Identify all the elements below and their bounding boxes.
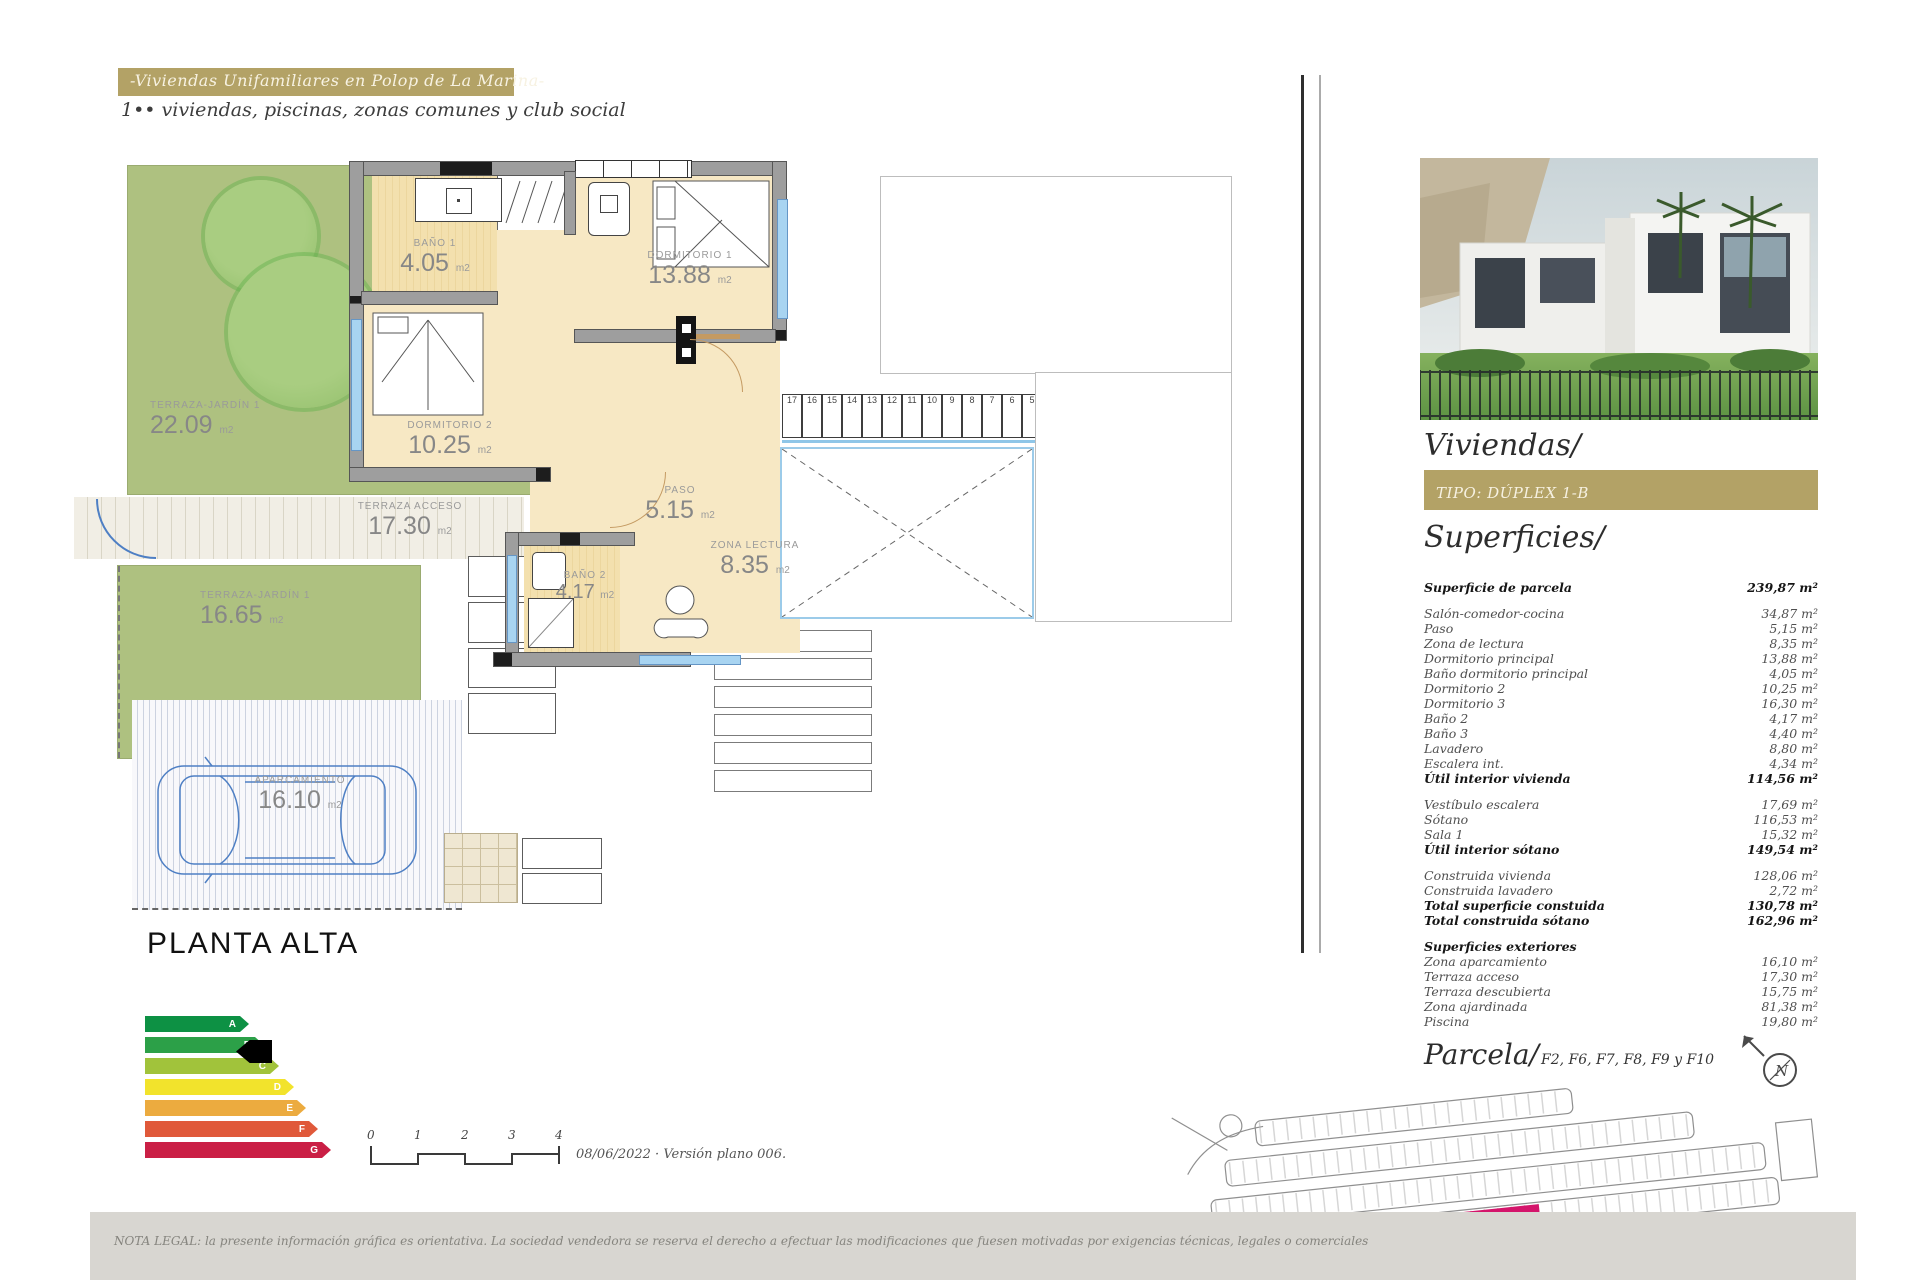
stair-tread: 13 <box>862 394 882 438</box>
room-label: TERRAZA-JARDÍN 1 22.09 m2 <box>150 400 260 440</box>
row-label: Baño dormitorio principal <box>1424 666 1588 681</box>
table-spacer <box>1424 786 1818 797</box>
scale-bar-icon <box>370 1144 570 1170</box>
wall <box>536 468 550 481</box>
row-label: Escalera int. <box>1424 756 1504 771</box>
wall <box>440 162 492 175</box>
row-value: 4,40 m² <box>1769 726 1818 741</box>
toilet-icon <box>588 182 630 236</box>
row-label: Zona de lectura <box>1424 636 1524 651</box>
void-x-icon <box>782 449 1032 617</box>
storage-shelf-small <box>522 838 602 904</box>
stair-tread: 9 <box>942 394 962 438</box>
stair-edge <box>782 440 1062 443</box>
table-spacer <box>1424 928 1818 939</box>
room-label: TERRAZA ACCESO 17.30 m2 <box>310 501 510 541</box>
parcela-subtitle: F2, F6, F7, F8, F9 y F10 <box>1541 1052 1714 1068</box>
row-value: 4,34 m² <box>1769 756 1818 771</box>
row-value: 239,87 m² <box>1747 580 1818 595</box>
viviendas-title: Viviendas/ <box>1424 428 1581 463</box>
wall <box>362 292 497 304</box>
wall <box>560 533 580 545</box>
superficies-table: Superficie de parcela239,87 m²Salón-come… <box>1424 580 1818 1029</box>
superficies-row: Construida lavadero2,72 m² <box>1424 883 1818 898</box>
stair-tread: 17 <box>782 394 802 438</box>
superficies-row: Dormitorio 210,25 m² <box>1424 681 1818 696</box>
wall <box>575 330 775 342</box>
wall <box>494 653 512 666</box>
superficies-row: Dormitorio principal13,88 m² <box>1424 651 1818 666</box>
room-label: ZONA LECTURA 8.35 m2 <box>690 540 820 580</box>
superficies-row: Terraza descubierta15,75 m² <box>1424 984 1818 999</box>
row-label: Sótano <box>1424 812 1468 827</box>
row-value: 19,80 m² <box>1761 1014 1818 1029</box>
superficies-row: Escalera int.4,34 m² <box>1424 756 1818 771</box>
row-value: 15,32 m² <box>1761 827 1818 842</box>
row-value: 8,80 m² <box>1769 741 1818 756</box>
room-label: DORMITORIO 2 10.25 m2 <box>380 420 520 460</box>
row-label: Dormitorio principal <box>1424 651 1554 666</box>
section-line <box>1301 75 1304 953</box>
superficies-row: Total superficie constuida130,78 m² <box>1424 898 1818 913</box>
window <box>508 556 516 642</box>
room-label: DORMITORIO 1 13.88 m2 <box>610 250 770 290</box>
room-label: BAÑO 2 4.17 m2 <box>540 570 630 604</box>
row-value: 4,17 m² <box>1769 711 1818 726</box>
row-value: 8,35 m² <box>1769 636 1818 651</box>
neighbour-outline <box>1035 372 1232 622</box>
parcela-title: Parcela/ <box>1424 1038 1539 1071</box>
energy-arrow-g: G <box>145 1142 331 1158</box>
superficies-row: Lavadero8,80 m² <box>1424 741 1818 756</box>
row-value: 2,72 m² <box>1769 883 1818 898</box>
sink-icon <box>415 178 502 222</box>
header-title: -Viviendas Unifamiliares en Polop de La … <box>130 71 545 90</box>
hall-floor <box>530 337 780 560</box>
row-label: Total superficie constuida <box>1424 898 1605 913</box>
superficies-row: Zona de lectura8,35 m² <box>1424 636 1818 651</box>
bed-icon <box>372 312 484 416</box>
superficies-row: Total construida sótano162,96 m² <box>1424 913 1818 928</box>
superficies-row: Paso5,15 m² <box>1424 621 1818 636</box>
superficies-row: Baño 34,40 m² <box>1424 726 1818 741</box>
stair-run: 1716151413121110987654 <box>782 394 1062 438</box>
door-lintel <box>690 334 740 339</box>
room-label: TERRAZA-JARDÍN 1 16.65 m2 <box>200 590 310 630</box>
row-value: 16,30 m² <box>1761 696 1818 711</box>
version-note: 08/06/2022 · Versión plano 006. <box>576 1147 786 1162</box>
shower-icon <box>528 598 574 648</box>
stair-tread: 7 <box>982 394 1002 438</box>
villa-render-photo <box>1420 158 1818 420</box>
energy-arrow-f: F <box>145 1121 318 1137</box>
row-label: Lavadero <box>1424 741 1483 756</box>
row-label: Zona aparcamiento <box>1424 954 1547 969</box>
plan-sheet: -Viviendas Unifamiliares en Polop de La … <box>0 0 1920 1280</box>
stair-tread: 11 <box>902 394 922 438</box>
row-value: 34,87 m² <box>1761 606 1818 621</box>
wall <box>565 172 575 234</box>
wall <box>350 468 550 481</box>
window <box>778 200 787 318</box>
floor-title: PLANTA ALTA <box>147 927 359 961</box>
parcela-heading: Parcela/F2, F6, F7, F8, F9 y F10 <box>1424 1038 1714 1071</box>
superficies-row: Terraza acceso17,30 m² <box>1424 969 1818 984</box>
row-value: 130,78 m² <box>1747 898 1818 913</box>
row-label: Superficie de parcela <box>1424 580 1572 595</box>
energy-arrow-e: E <box>145 1100 306 1116</box>
row-label: Construida lavadero <box>1424 883 1553 898</box>
superficies-row: Vestíbulo escalera17,69 m² <box>1424 797 1818 812</box>
window <box>640 656 740 664</box>
row-value: 17,30 m² <box>1761 969 1818 984</box>
stair-tread: 6 <box>1002 394 1022 438</box>
patio-grid <box>444 833 518 903</box>
row-label: Terraza acceso <box>1424 969 1519 984</box>
row-label: Sala 1 <box>1424 827 1463 842</box>
energy-arrow-d: D <box>145 1079 294 1095</box>
superficies-row: Zona ajardinada81,38 m² <box>1424 999 1818 1014</box>
energy-arrow-a: A <box>145 1016 249 1032</box>
superficies-row: Sala 115,32 m² <box>1424 827 1818 842</box>
row-value: 114,56 m² <box>1747 771 1818 786</box>
table-spacer <box>1424 595 1818 606</box>
row-label: Dormitorio 3 <box>1424 696 1505 711</box>
superficies-row: Piscina19,80 m² <box>1424 1014 1818 1029</box>
superficies-row: Baño dormitorio principal4,05 m² <box>1424 666 1818 681</box>
row-label: Salón-comedor-cocina <box>1424 606 1564 621</box>
superficies-row: Construida vivienda128,06 m² <box>1424 868 1818 883</box>
row-label: Baño 3 <box>1424 726 1468 741</box>
car-icon <box>150 752 430 892</box>
window-grille <box>575 160 692 178</box>
section-line <box>1319 75 1321 953</box>
void-x-area <box>780 447 1034 619</box>
row-value: 13,88 m² <box>1761 651 1818 666</box>
svg-text:N: N <box>1774 1062 1789 1080</box>
room-label: APARCAMIENTO 16.10 m2 <box>225 775 375 815</box>
superficies-row: Baño 24,17 m² <box>1424 711 1818 726</box>
row-label: Útil interior sótano <box>1424 842 1559 857</box>
superficies-row: Superficies exteriores <box>1424 939 1818 954</box>
stair-tread: 15 <box>822 394 842 438</box>
row-label: Terraza descubierta <box>1424 984 1551 999</box>
row-value: 116,53 m² <box>1753 812 1818 827</box>
energy-label: ABCDEFG <box>145 1016 345 1163</box>
row-label: Zona ajardinada <box>1424 999 1527 1014</box>
row-value: 149,54 m² <box>1747 842 1818 857</box>
row-value: 5,15 m² <box>1769 621 1818 636</box>
row-label: Útil interior vivienda <box>1424 771 1571 786</box>
window <box>352 320 361 450</box>
row-label: Vestíbulo escalera <box>1424 797 1539 812</box>
row-value: 16,10 m² <box>1761 954 1818 969</box>
superficies-row: Dormitorio 316,30 m² <box>1424 696 1818 711</box>
stair-tread: 8 <box>962 394 982 438</box>
row-label: Superficies exteriores <box>1424 939 1577 954</box>
row-label: Dormitorio 2 <box>1424 681 1505 696</box>
superficies-title: Superficies/ <box>1424 520 1605 555</box>
scale-bar: 0 1 2 3 4 <box>370 1128 570 1170</box>
superficies-row: Útil interior sótano149,54 m² <box>1424 842 1818 857</box>
room-label: BAÑO 1 4.05 m2 <box>385 238 485 278</box>
row-label: Piscina <box>1424 1014 1469 1029</box>
row-value: 15,75 m² <box>1761 984 1818 999</box>
table-spacer <box>1424 857 1818 868</box>
row-value: 17,69 m² <box>1761 797 1818 812</box>
superficies-row: Superficie de parcela239,87 m² <box>1424 580 1818 595</box>
reading-chair-icon <box>650 575 720 645</box>
row-label: Total construida sótano <box>1424 913 1589 928</box>
row-value: 4,05 m² <box>1769 666 1818 681</box>
superficies-row: Sótano116,53 m² <box>1424 812 1818 827</box>
row-value: 128,06 m² <box>1753 868 1818 883</box>
row-label: Baño 2 <box>1424 711 1468 726</box>
stair-tread: 14 <box>842 394 862 438</box>
stair-tread: 16 <box>802 394 822 438</box>
row-label: Paso <box>1424 621 1453 636</box>
row-value: 81,38 m² <box>1761 999 1818 1014</box>
superficies-row: Zona aparcamiento16,10 m² <box>1424 954 1818 969</box>
header-subtitle: 1•• viviendas, piscinas, zonas comunes y… <box>121 99 626 121</box>
row-label: Construida vivienda <box>1424 868 1551 883</box>
superficies-row: Útil interior vivienda114,56 m² <box>1424 771 1818 786</box>
stair-tread: 10 <box>922 394 942 438</box>
tipo-label: TIPO: DÚPLEX 1-B <box>1436 484 1589 502</box>
row-value: 10,25 m² <box>1761 681 1818 696</box>
stair-tread: 12 <box>882 394 902 438</box>
wall <box>350 162 363 304</box>
legal-note: NOTA LEGAL: la presente información gráf… <box>114 1234 1368 1248</box>
room-label: PASO 5.15 m2 <box>620 485 740 525</box>
superficies-row: Salón-comedor-cocina34,87 m² <box>1424 606 1818 621</box>
row-value: 162,96 m² <box>1747 913 1818 928</box>
neighbour-outline <box>880 176 1232 374</box>
